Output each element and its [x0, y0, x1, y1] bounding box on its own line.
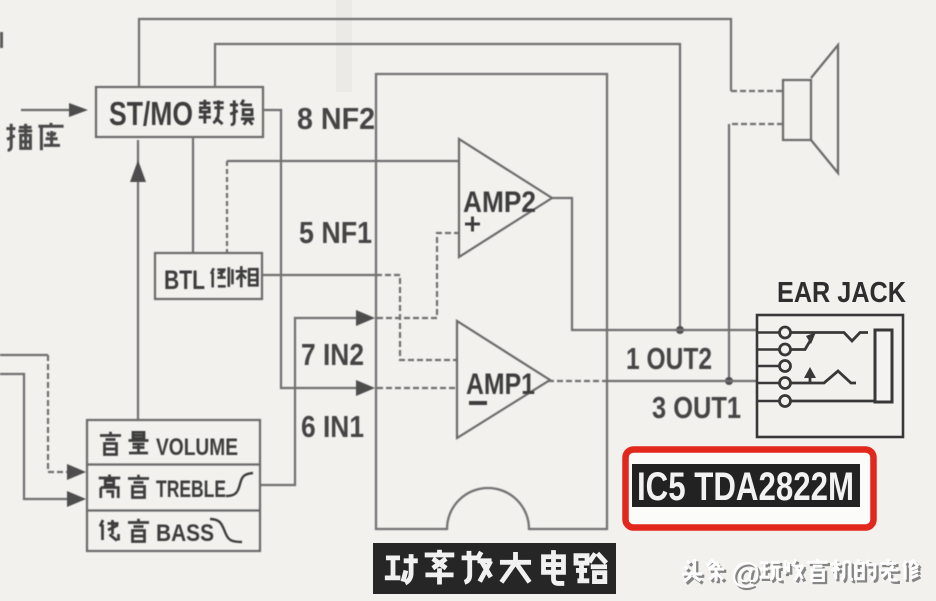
svg-text:VOLUME: VOLUME	[156, 434, 238, 461]
svg-text:1 OUT2: 1 OUT2	[626, 341, 712, 376]
svg-text:AMP1: AMP1	[466, 368, 535, 401]
svg-text:BASS: BASS	[156, 520, 214, 547]
svg-text:7 IN2: 7 IN2	[301, 337, 364, 372]
svg-text:6 IN1: 6 IN1	[301, 409, 364, 444]
svg-text:@: @	[731, 557, 760, 590]
svg-text:8 NF2: 8 NF2	[297, 101, 375, 136]
svg-text:EAR JACK: EAR JACK	[777, 277, 906, 309]
svg-text:BTL: BTL	[164, 265, 205, 295]
svg-text:ST/MO: ST/MO	[109, 95, 193, 132]
svg-text:5 NF1: 5 NF1	[299, 215, 372, 250]
svg-text:IC5 TDA2822M: IC5 TDA2822M	[637, 465, 854, 509]
svg-text:AMP2: AMP2	[463, 186, 536, 219]
svg-text:3 OUT1: 3 OUT1	[652, 390, 741, 425]
svg-text:TREBLE: TREBLE	[156, 476, 226, 503]
